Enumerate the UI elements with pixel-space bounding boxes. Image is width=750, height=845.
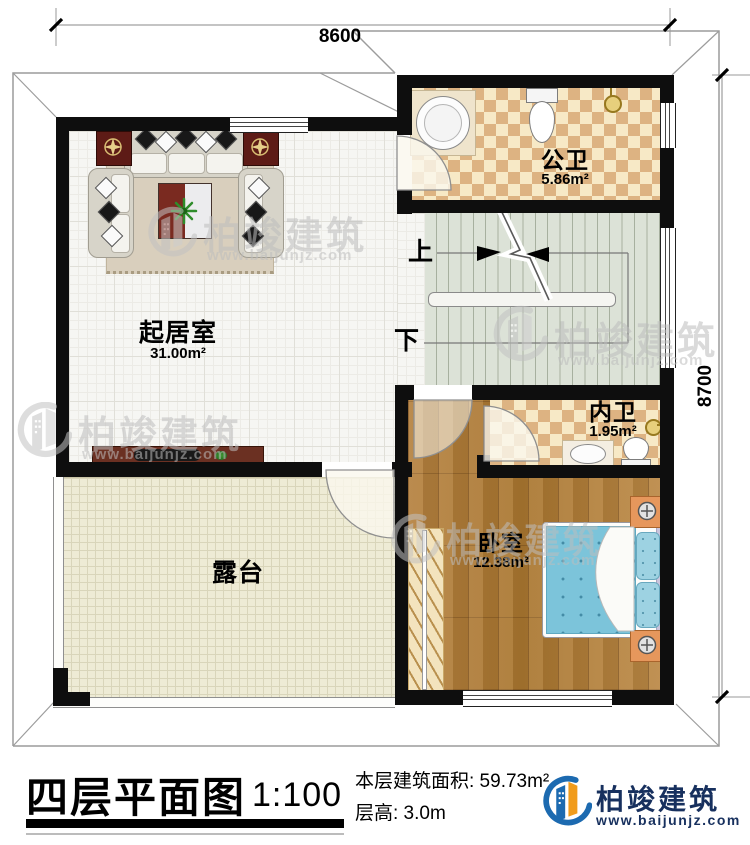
ladder-rail bbox=[422, 530, 427, 690]
wall bbox=[397, 200, 674, 213]
label-public-bath: 公卫 5.86m² bbox=[515, 148, 615, 188]
window-east-stairs bbox=[660, 228, 676, 368]
wall bbox=[395, 400, 408, 705]
wall bbox=[395, 690, 463, 705]
sink-small bbox=[570, 444, 606, 464]
sink bbox=[416, 96, 470, 150]
wall bbox=[612, 690, 674, 705]
floor-plan-page: 8600 8700 bbox=[0, 0, 750, 845]
wall bbox=[660, 368, 674, 692]
terrace-floor bbox=[62, 477, 397, 699]
plan-scale: 1:100 bbox=[252, 776, 342, 815]
title-block: 四层平面图 1:100 本层建筑面积: 59.73m² 层高: 3.0m 柏竣建… bbox=[0, 758, 750, 845]
bed-mattress bbox=[546, 526, 636, 634]
stair-handrail bbox=[428, 292, 616, 307]
tv bbox=[134, 449, 200, 461]
side-table-right bbox=[243, 131, 279, 166]
label-bedroom: 卧室 12.38m² bbox=[455, 532, 547, 571]
label-living-room: 起居室 31.00m² bbox=[122, 320, 234, 362]
wall bbox=[395, 385, 414, 400]
plan-title: 四层平面图 bbox=[26, 764, 246, 825]
shower-stem bbox=[610, 88, 612, 96]
title-underline-thin bbox=[26, 833, 344, 835]
coffee-table bbox=[158, 183, 212, 239]
label-terrace: 露台 bbox=[198, 560, 278, 586]
bed-pillow bbox=[636, 532, 660, 580]
label-ensuite-bath: 内卫 1.95m² bbox=[565, 400, 661, 440]
wall-corner-post bbox=[53, 692, 90, 706]
wall bbox=[472, 385, 674, 400]
title-underline bbox=[26, 819, 344, 828]
plant-small bbox=[215, 451, 227, 460]
wall bbox=[397, 75, 674, 88]
wall bbox=[56, 117, 230, 131]
dimension-height-label: 8700 bbox=[695, 346, 717, 426]
brand-website: www.baijunjz.com bbox=[596, 812, 741, 828]
side-table-left bbox=[96, 131, 132, 166]
wall bbox=[477, 465, 674, 478]
floor-height-text: 层高: 3.0m bbox=[355, 798, 446, 825]
dimension-width-label: 8600 bbox=[297, 26, 383, 48]
bed-pillow bbox=[636, 582, 660, 628]
window-north bbox=[230, 117, 308, 133]
wall bbox=[660, 148, 674, 228]
terrace-parapet-south bbox=[53, 697, 395, 708]
window-east-bath bbox=[660, 103, 676, 148]
floor-area-text: 本层建筑面积: 59.73m² bbox=[355, 766, 549, 793]
wall bbox=[56, 462, 322, 477]
stairs-up-label: 上 bbox=[408, 240, 433, 265]
wall bbox=[56, 117, 69, 477]
shower-head bbox=[604, 95, 622, 113]
window-south-bedroom bbox=[463, 690, 612, 707]
wall bbox=[660, 75, 674, 103]
brand-logo-icon bbox=[540, 772, 592, 832]
stairs-down-label: 下 bbox=[394, 329, 419, 354]
